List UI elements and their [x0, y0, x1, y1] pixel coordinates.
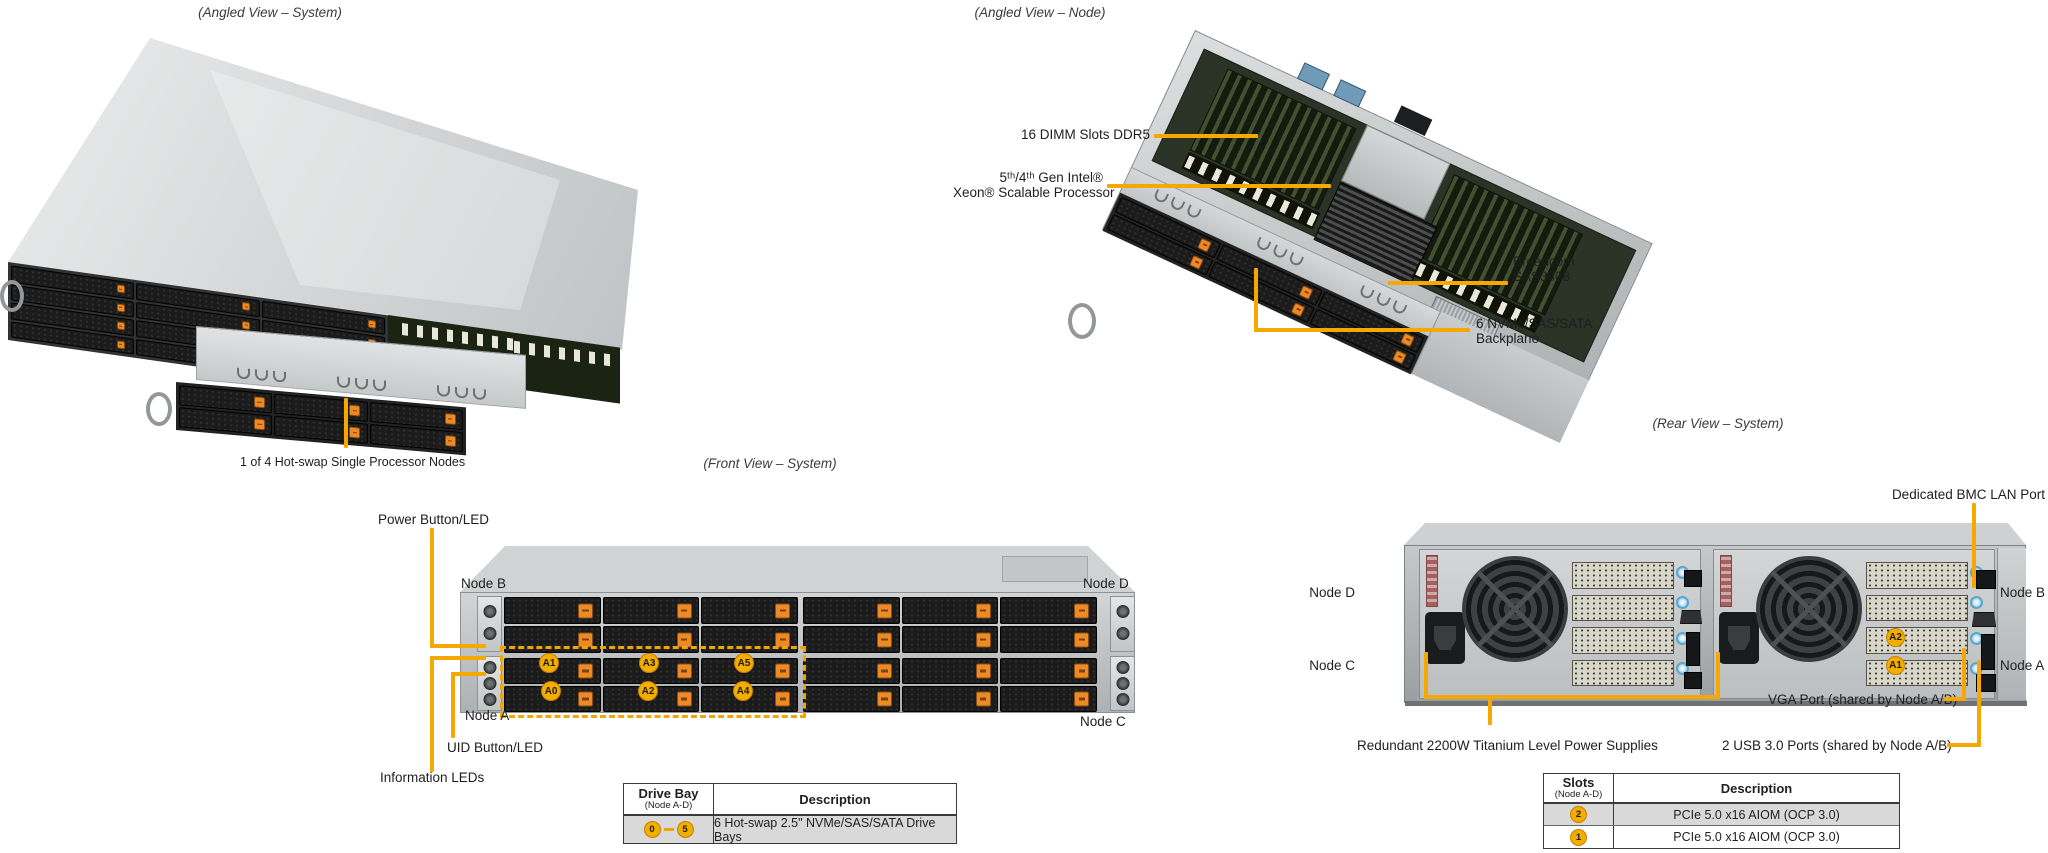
slots-header-cell: Slots (Node A-D)	[1544, 774, 1614, 802]
node-b-label-front: Node B	[461, 576, 506, 591]
drive-release-button[interactable]	[117, 285, 125, 294]
drive-release-button[interactable]	[578, 603, 593, 618]
drive-quad-node-c	[803, 658, 1097, 712]
node-handle-ring	[146, 392, 172, 426]
power-inlet-right[interactable]	[1719, 612, 1759, 664]
pcie-grille-stack-right	[1866, 562, 1968, 686]
node-a-label-rear: Node A	[2000, 658, 2044, 673]
uid-button-node-a[interactable]	[483, 677, 496, 690]
rear-fan-right	[1756, 556, 1862, 662]
vent-cutout	[473, 388, 486, 400]
description-header: Description	[714, 784, 956, 814]
rear-connector-blue	[1333, 79, 1366, 107]
vent-cutout	[273, 371, 286, 383]
drive-sled[interactable]	[1000, 658, 1097, 684]
rear-section-nodes-cd	[1419, 549, 1701, 699]
front-lid-vent	[1002, 556, 1088, 582]
psu-callout-line-left	[1424, 652, 1428, 699]
bmc-lan-port[interactable]	[1976, 570, 1996, 589]
range-start-badge: 0	[644, 821, 661, 838]
drive-release-button[interactable]	[117, 303, 125, 312]
drive-release-button[interactable]	[1074, 632, 1089, 647]
uid-button-label: UID Button/LED	[447, 740, 543, 755]
drive-sled[interactable]	[701, 597, 798, 624]
node-callout-line	[344, 398, 348, 448]
info-callout-line-v	[430, 656, 434, 772]
pcie-slot-grille	[1572, 627, 1674, 654]
node-d-label-rear: Node D	[1300, 585, 1355, 600]
node-a-label-front: Node A	[465, 708, 509, 723]
drive-release-button[interactable]	[349, 405, 360, 417]
vent-cutout	[255, 369, 268, 381]
sas-callout-line	[1388, 281, 1508, 285]
power-button-node-c[interactable]	[1116, 661, 1129, 674]
slot-badge: 1	[1570, 829, 1587, 846]
pcie-slot-grille	[1866, 595, 1968, 622]
drive-release-button[interactable]	[242, 321, 250, 330]
vent-cutout	[455, 387, 468, 399]
usb-ports-label: 2 USB 3.0 Ports (shared by Node A/B)	[1722, 738, 1952, 753]
pcie-slot-grille	[1572, 660, 1674, 687]
drive-release-button[interactable]	[1074, 603, 1089, 618]
psu-callout-line-drop	[1488, 695, 1492, 725]
usb-callout-line-v	[1977, 660, 1981, 747]
drive-release-button[interactable]	[775, 603, 790, 618]
node-b-label-rear: Node B	[2000, 585, 2045, 600]
drive-release-button[interactable]	[877, 603, 892, 618]
drive-sled[interactable]	[1000, 626, 1097, 653]
front-view-title: (Front View – System)	[660, 456, 880, 471]
drive-sled[interactable]	[603, 597, 700, 624]
usb-30-ports[interactable]	[1981, 634, 1995, 670]
drive-sled[interactable]	[803, 597, 900, 624]
vga-port-shared[interactable]	[1972, 612, 1996, 627]
drive-release-button[interactable]	[1291, 302, 1306, 317]
drive-release-button[interactable]	[677, 603, 692, 618]
info-callout-line-h	[430, 656, 486, 660]
node-vent-group	[437, 385, 486, 400]
drive-bay-row: 0 5 6 Hot-swap 2.5" NVMe/SAS/SATA Drive …	[624, 816, 956, 843]
drive-badge: A5	[734, 653, 754, 673]
drive-release-button[interactable]	[976, 603, 991, 618]
drive-sled[interactable]	[803, 658, 900, 684]
cpu-label-line2: Xeon® Scalable Processor	[953, 185, 1115, 200]
pcie-slot-grille	[1866, 660, 1968, 687]
drive-badge: A1	[539, 653, 559, 673]
drive-release-button[interactable]	[578, 632, 593, 647]
angled-system-view	[0, 30, 660, 470]
vent-cutout	[237, 368, 250, 380]
information-leds-label: Information LEDs	[380, 770, 484, 785]
angled-node-view	[1085, 45, 1685, 455]
drive-sled[interactable]	[803, 686, 900, 712]
drive-release-button[interactable]	[1401, 332, 1416, 347]
vent-cutout	[1272, 245, 1288, 260]
vga-port[interactable]	[1680, 610, 1702, 624]
slots-header-title: Slots	[1563, 776, 1595, 789]
drive-bay-header-title: Drive Bay	[639, 787, 699, 800]
angled-node-title: (Angled View – Node)	[940, 5, 1140, 20]
power-callout-line-v	[430, 528, 434, 648]
node-d-label-front: Node D	[1083, 576, 1129, 591]
psu-label: Redundant 2200W Titanium Level Power Sup…	[1357, 738, 1658, 753]
pcie-slot-grille	[1572, 595, 1674, 622]
vent-cutout	[1358, 285, 1374, 300]
vent-cutout	[1288, 252, 1304, 267]
backplane-label: 6 NVMe/SAS/SATABackplane	[1476, 316, 1593, 346]
usb-port-stack[interactable]	[1686, 632, 1700, 666]
rear-section-nodes-ab: A2 A1	[1713, 549, 1995, 699]
cpu-callout-line	[1107, 184, 1331, 188]
drive-release-button[interactable]	[877, 664, 892, 679]
pcie-slot-grille	[1866, 562, 1968, 589]
node-c-label-rear: Node C	[1300, 658, 1355, 673]
uid-callout-line-h	[451, 672, 486, 676]
range-dash	[664, 828, 674, 831]
drive-release-button[interactable]	[677, 632, 692, 647]
vent-cutout	[1391, 300, 1407, 315]
cpu-label-line1: 5ᵗʰ/4ᵗʰ Gen Intel®	[999, 170, 1103, 185]
rear-connector-black	[1394, 105, 1432, 136]
drive-bay-description: 6 Hot-swap 2.5" NVMe/SAS/SATA Drive Bays	[714, 816, 956, 843]
rear-end-cap	[1997, 548, 2026, 700]
vent-cutout	[1375, 292, 1391, 307]
vent-cutout	[437, 385, 450, 397]
vent-cutout	[337, 376, 350, 388]
drive-sled[interactable]	[902, 626, 999, 653]
drive-release-button[interactable]	[242, 302, 250, 311]
slot-number-cell: 1	[1544, 826, 1614, 848]
backplane-label-line1: 6 NVMe/SAS/SATA	[1476, 316, 1593, 331]
bmc-callout-line	[1972, 503, 1976, 588]
drive-release-button[interactable]	[368, 320, 376, 329]
psu-callout-line-right	[1716, 652, 1720, 699]
vent-cutout	[1185, 204, 1201, 219]
psu-latch[interactable]	[1426, 555, 1438, 607]
range-end-badge: 5	[677, 821, 694, 838]
power-inlet-left[interactable]	[1425, 612, 1465, 664]
drive-release-button[interactable]	[1190, 255, 1205, 270]
uid-button-node-d[interactable]	[1116, 627, 1129, 640]
node-vent-group	[237, 368, 286, 383]
drive-release-button[interactable]	[976, 692, 991, 707]
uid-callout-line-v	[451, 672, 455, 738]
uid-button-node-c[interactable]	[1116, 677, 1129, 690]
drive-release-button[interactable]	[976, 664, 991, 679]
uid-button-node-b[interactable]	[483, 627, 496, 640]
drive-release-button[interactable]	[445, 435, 456, 447]
angled-system-title: (Angled View – System)	[170, 5, 370, 20]
drive-bay-header-cell: Drive Bay (Node A-D)	[624, 784, 714, 814]
thumbscrew[interactable]	[1676, 596, 1689, 609]
psu-callout-line-h	[1424, 695, 1720, 699]
slot-row: 1 PCIe 5.0 x16 AIOM (OCP 3.0)	[1544, 826, 1899, 848]
drive-sled[interactable]	[504, 597, 601, 624]
server-datasheet-page: { "palette":{"callout":"#F7A800","badge_…	[0, 0, 2048, 853]
information-leds-node-c	[1116, 693, 1129, 706]
bmc-lan-label: Dedicated BMC LAN Port	[1860, 487, 2045, 502]
vga-callout-line-v	[1962, 648, 1966, 701]
drive-release-button[interactable]	[1393, 349, 1408, 364]
drive-release-button[interactable]	[1074, 664, 1089, 679]
vent-cutout	[373, 379, 386, 391]
drive-release-button[interactable]	[254, 396, 265, 408]
slot-badge: A1	[1886, 656, 1905, 675]
drive-release-button[interactable]	[877, 632, 892, 647]
backplane-callout-line-v	[1254, 268, 1258, 332]
information-leds-node-a	[483, 693, 496, 706]
slot-badge: 2	[1570, 806, 1587, 823]
vent-cutout	[1255, 237, 1271, 252]
drive-release-button[interactable]	[117, 340, 125, 349]
drive-badge: A3	[639, 653, 659, 673]
backplane-callout-line-h	[1254, 328, 1470, 332]
power-button-node-b[interactable]	[483, 605, 496, 618]
drive-quad-node-d	[803, 597, 1097, 653]
power-button-node-d[interactable]	[1116, 605, 1129, 618]
description-header: Description	[1614, 774, 1899, 802]
usb-callout-line-h	[1947, 743, 1981, 747]
node-vent-group	[337, 376, 386, 391]
drive-bay-table: Drive Bay (Node A-D) Description 0 5 6 H…	[623, 783, 957, 844]
drive-badge: A0	[541, 681, 561, 701]
front-ear-node-c	[1110, 656, 1135, 711]
rear-connector-blue	[1297, 62, 1330, 90]
slot-badge: A2	[1886, 628, 1905, 647]
front-ear-node-a	[477, 656, 502, 711]
drive-release-button[interactable]	[877, 692, 892, 707]
vent-cutout	[1169, 197, 1185, 212]
drive-release-button[interactable]	[117, 322, 125, 331]
drive-release-button[interactable]	[254, 418, 265, 430]
lan-port[interactable]	[1684, 672, 1702, 689]
vent-cutout	[355, 378, 368, 390]
drive-release-button[interactable]	[976, 632, 991, 647]
pcie-slot-grille	[1866, 627, 1968, 654]
drive-release-button[interactable]	[775, 632, 790, 647]
drive-sled[interactable]	[902, 597, 999, 624]
slot-description: PCIe 5.0 x16 AIOM (OCP 3.0)	[1614, 826, 1899, 848]
psu-latch[interactable]	[1720, 555, 1732, 607]
drive-sled[interactable]	[902, 686, 999, 712]
front-ear-node-d	[1110, 596, 1135, 652]
drive-release-button[interactable]	[445, 413, 456, 425]
cpu-label: 5ᵗʰ/4ᵗʰ Gen Intel®Xeon® Scalable Process…	[953, 170, 1103, 200]
node-callout-label: 1 of 4 Hot-swap Single Processor Nodes	[240, 455, 455, 470]
node-c-label-front: Node C	[1080, 714, 1126, 729]
power-button-label: Power Button/LED	[378, 512, 489, 527]
sas-label: BroadcomSAS3808	[1513, 254, 1575, 284]
drive-sled[interactable]	[1000, 686, 1097, 712]
drive-badge: A2	[638, 681, 658, 701]
drive-release-button[interactable]	[1299, 285, 1314, 300]
lan-port[interactable]	[1684, 570, 1702, 587]
thumbscrew[interactable]	[1970, 596, 1983, 609]
slot-number-cell: 2	[1544, 804, 1614, 825]
power-callout-line-h	[430, 644, 486, 648]
drive-release-button[interactable]	[1198, 238, 1213, 253]
drive-quad-node-b	[504, 597, 798, 653]
pcie-grille-stack-left	[1572, 562, 1674, 686]
rear-fan-left	[1462, 556, 1568, 662]
vga-port-label: VGA Port (shared by Node A/B)	[1768, 692, 1957, 707]
drive-bay-range-cell: 0 5	[624, 816, 714, 843]
rear-chassis-body: A2 A1	[1404, 545, 2026, 703]
drive-release-button[interactable]	[349, 427, 360, 439]
drive-bay-header-sub: (Node A-D)	[645, 800, 693, 811]
drive-sled[interactable]	[803, 626, 900, 653]
pcie-slot-grille	[1572, 562, 1674, 589]
dimm-label: 16 DIMM Slots DDR5	[1000, 127, 1150, 142]
drive-badge: A4	[733, 681, 753, 701]
slots-header-sub: (Node A-D)	[1555, 789, 1603, 800]
drive-release-button[interactable]	[1074, 692, 1089, 707]
sas-label-line1: Broadcom	[1513, 254, 1575, 269]
node-handle-ring	[1068, 303, 1096, 339]
dimm-callout-line	[1154, 134, 1258, 138]
backplane-label-line2: Backplane	[1476, 331, 1539, 346]
vent-cutout	[1153, 189, 1169, 204]
slot-row: 2 PCIe 5.0 x16 AIOM (OCP 3.0)	[1544, 804, 1899, 826]
node-tray	[1102, 30, 1653, 443]
drive-sled[interactable]	[902, 658, 999, 684]
slot-description: PCIe 5.0 x16 AIOM (OCP 3.0)	[1614, 804, 1899, 825]
sas-label-line2: SAS3808	[1513, 269, 1570, 284]
slots-table: Slots (Node A-D) Description 2 PCIe 5.0 …	[1543, 773, 1900, 849]
drive-sled[interactable]	[1000, 597, 1097, 624]
chassis-handle-ring	[0, 280, 24, 312]
